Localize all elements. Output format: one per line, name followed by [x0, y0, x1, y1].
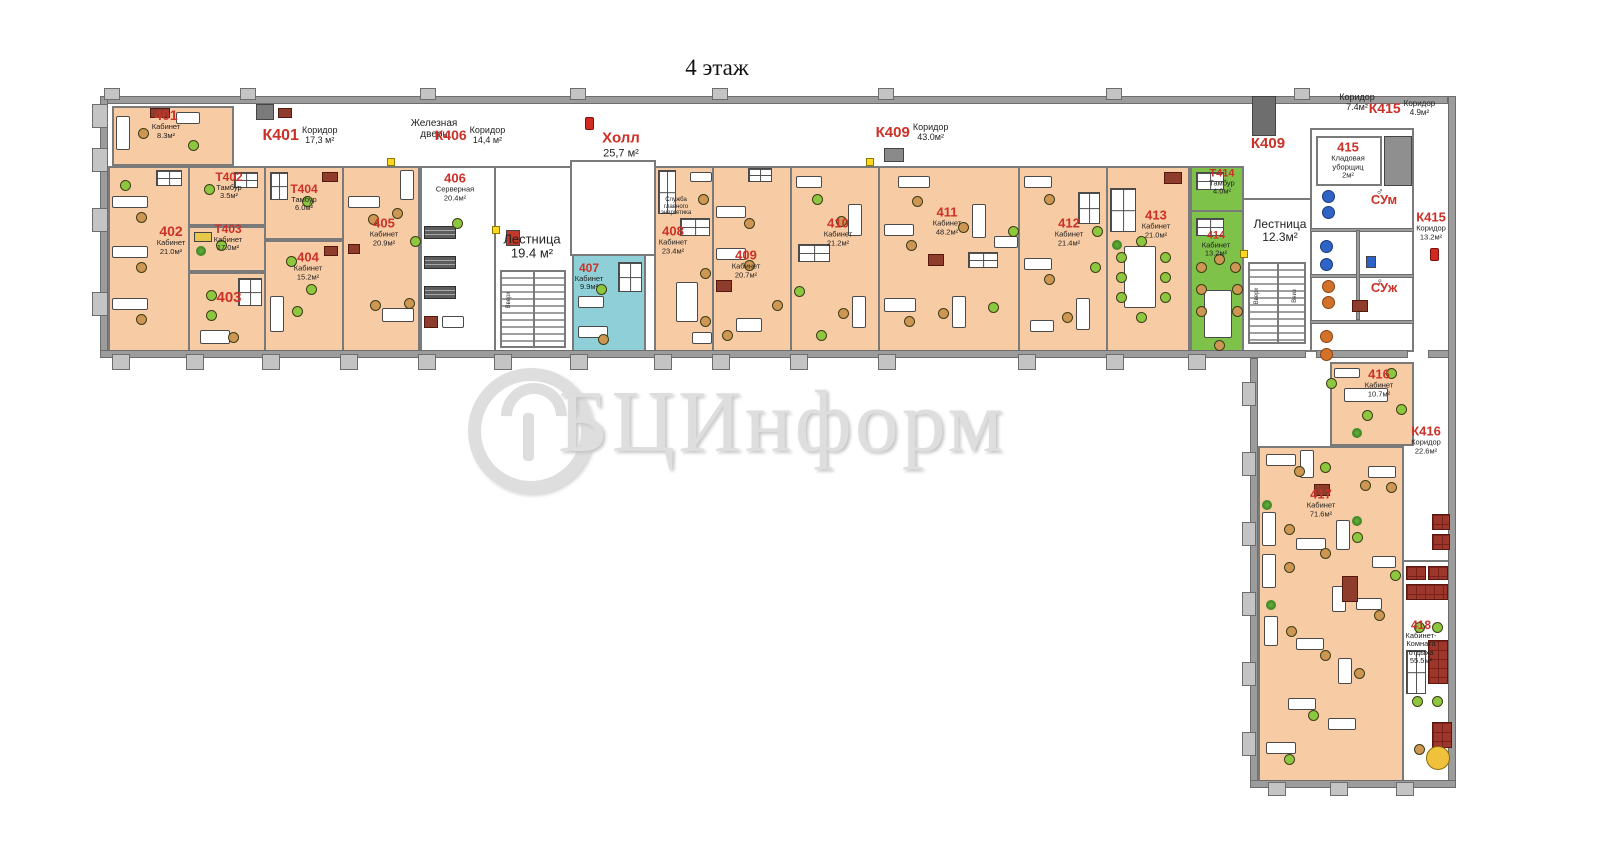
text-line: Служба	[661, 197, 691, 204]
chair-icon	[136, 212, 147, 223]
fixture	[1366, 256, 1376, 268]
room-number: 404	[294, 251, 323, 265]
room-number: 401	[152, 108, 181, 123]
desk	[442, 316, 464, 328]
pilaster	[494, 354, 512, 370]
chair-icon	[370, 300, 381, 311]
text-line: Лестница	[503, 233, 560, 247]
chair-icon	[206, 310, 217, 321]
chair-icon	[1432, 696, 1443, 707]
label-404: 404Кабинет15.2м²	[294, 251, 323, 282]
chair-icon	[136, 262, 147, 273]
desk	[1264, 616, 1278, 646]
desk	[1204, 290, 1232, 338]
safety-sign-icon	[866, 158, 874, 166]
room-area: 9.9м²	[575, 284, 604, 292]
safety-sign-icon	[387, 158, 395, 166]
chair-icon	[812, 194, 823, 205]
room-number: 402	[157, 224, 186, 239]
sofa	[1432, 534, 1450, 550]
chair-icon	[700, 316, 711, 327]
room-area: 23.4м²	[659, 247, 688, 255]
room-area: 21.4м²	[1055, 239, 1084, 247]
room-area: 13.2м²	[1416, 233, 1446, 241]
wall-segment	[1310, 320, 1414, 324]
cabinet	[1164, 172, 1182, 184]
desk	[382, 308, 414, 322]
pilaster	[1242, 522, 1256, 546]
room-number: 408	[659, 225, 688, 239]
pilaster	[1268, 782, 1286, 796]
room-area: 20.4м²	[436, 194, 474, 202]
chair-icon	[1090, 262, 1101, 273]
wall-segment	[100, 96, 1448, 104]
label-К415: К415Коридор13.2м²	[1416, 211, 1446, 242]
desk	[1024, 258, 1052, 270]
label-К409: К409Коридор43.0м²	[876, 123, 949, 143]
chair-icon	[410, 236, 421, 247]
watermark-logo-icon	[468, 368, 594, 494]
label-410: 410Кабинет21.2м²	[824, 217, 853, 248]
chair-icon	[1374, 610, 1385, 621]
cabinet	[424, 316, 438, 328]
chair-icon	[1294, 466, 1305, 477]
chair-icon	[452, 218, 463, 229]
desk	[994, 236, 1018, 248]
chair-icon	[1160, 292, 1171, 303]
shelf	[238, 278, 262, 306]
chair-icon	[1232, 284, 1243, 295]
room-hall	[570, 160, 656, 256]
chair-icon	[772, 300, 783, 311]
pilaster	[92, 208, 108, 232]
chair-icon	[306, 284, 317, 295]
chair-icon	[228, 332, 239, 343]
chair-icon	[722, 330, 733, 341]
label-СУж: СУж	[1371, 281, 1397, 295]
plant-icon	[1352, 516, 1362, 526]
server-rack	[424, 256, 456, 269]
label-Т403: Т403Кабинет17.0м²	[214, 223, 243, 253]
room-area: 21.2м²	[824, 239, 853, 247]
shelf	[618, 262, 642, 292]
label-Т414: Т414Тамбур4.0м²	[1209, 168, 1234, 197]
desk	[400, 170, 414, 200]
chair-icon	[1136, 312, 1147, 323]
desk	[796, 176, 822, 188]
pilaster	[1242, 452, 1256, 476]
label-К416: К416Коридор22.6м²	[1411, 425, 1441, 456]
plant-icon	[1112, 240, 1122, 250]
chair-icon	[1326, 378, 1337, 389]
room-area: 55.5м²	[1405, 657, 1436, 665]
chair-icon	[1160, 252, 1171, 263]
toilet-icon	[1320, 348, 1333, 361]
desk	[884, 224, 914, 236]
chair-icon	[1396, 404, 1407, 415]
pilaster	[1188, 354, 1206, 370]
room-area: 21.0м²	[157, 248, 186, 256]
pilaster	[570, 354, 588, 370]
desk	[112, 246, 148, 258]
pilaster	[186, 354, 204, 370]
room-number: 416	[1365, 368, 1394, 382]
corridor-info: Коридор43.0м²	[913, 123, 949, 143]
room-area: 8.3м²	[152, 132, 181, 140]
label-418: 418Кабинет-Комнатаотдыха55.5м²	[1405, 619, 1436, 665]
sofa	[1432, 514, 1450, 530]
label-412: 412Кабинет21.4м²	[1055, 217, 1084, 248]
toilet-icon	[1320, 258, 1333, 271]
room-number: К415	[1416, 211, 1446, 225]
label-416: 416Кабинет10.7м²	[1365, 368, 1394, 399]
chair-icon	[988, 302, 999, 313]
chair-icon	[1214, 340, 1225, 351]
pilaster	[92, 292, 108, 316]
label-Лестница: Лестница12.3м²	[1254, 218, 1307, 244]
chair-icon	[1386, 482, 1397, 493]
cabinet	[716, 280, 732, 292]
pilaster	[262, 354, 280, 370]
pilaster	[340, 354, 358, 370]
chair-icon	[1390, 570, 1401, 581]
desk	[270, 296, 284, 332]
corridor-area: 14,4 м²	[470, 136, 506, 146]
fixture	[1252, 96, 1276, 136]
shelf	[270, 172, 288, 200]
pilaster	[1242, 662, 1256, 686]
wall-segment	[1310, 274, 1414, 278]
desk	[578, 296, 604, 308]
chair-icon	[120, 180, 131, 191]
desk	[348, 196, 380, 208]
room-number: 410	[824, 217, 853, 231]
pilaster	[418, 354, 436, 370]
pilaster	[1018, 354, 1036, 370]
page-title: 4 этаж	[685, 55, 749, 81]
label-К406: К406Коридор14,4 м²	[435, 126, 505, 146]
room-number: 409	[732, 249, 761, 263]
desk	[1262, 512, 1276, 546]
room-area: 25,7 м²	[602, 147, 640, 159]
chair-icon	[1062, 312, 1073, 323]
label-407: 407Кабинет9.9м²	[575, 262, 604, 292]
chair-icon	[136, 314, 147, 325]
chair-icon	[1092, 226, 1103, 237]
pilaster	[92, 148, 108, 172]
chair-icon	[404, 298, 415, 309]
sofa	[1406, 584, 1448, 600]
chair-icon	[1116, 292, 1127, 303]
pilaster	[104, 88, 120, 100]
chair-icon	[1320, 650, 1331, 661]
label-Вверх: Вверх	[506, 292, 512, 309]
chair-icon	[1160, 272, 1171, 283]
corridor-id: К401	[262, 127, 298, 145]
room-number: СУм	[1371, 193, 1397, 207]
room-area: 10.7м²	[1365, 390, 1394, 398]
chair-icon	[906, 240, 917, 251]
text-line: 12.3м²	[1254, 231, 1307, 244]
pilaster	[1396, 782, 1414, 796]
desk	[736, 318, 762, 332]
shelf	[1110, 188, 1136, 232]
label-К409: К409	[1251, 136, 1285, 153]
desk	[1266, 742, 1296, 754]
desk	[200, 330, 230, 344]
desk	[898, 176, 930, 188]
cabinet	[322, 172, 338, 182]
pilaster	[1242, 382, 1256, 406]
pilaster	[112, 354, 130, 370]
chair-icon	[838, 308, 849, 319]
chair-icon	[700, 268, 711, 279]
room-area: 20.9м²	[370, 239, 399, 247]
sofa	[1432, 722, 1452, 748]
room-area: 48.2м²	[933, 228, 962, 236]
chair-icon	[1352, 532, 1363, 543]
room-area: 20.7м²	[732, 271, 761, 279]
room-area: 6.0м²	[290, 205, 317, 213]
chair-icon	[1286, 626, 1297, 637]
label-402: 402Кабинет21.0м²	[157, 224, 186, 256]
room-402	[108, 166, 190, 352]
toilet-icon	[1322, 296, 1335, 309]
cabinet	[278, 108, 292, 118]
label-405: 405Кабинет20.9м²	[370, 217, 399, 248]
cabinet	[348, 244, 360, 254]
toilet-icon	[1322, 280, 1335, 293]
safety-sign-icon	[492, 226, 500, 234]
room-411	[878, 166, 1020, 352]
desk	[1262, 554, 1276, 588]
desk	[1076, 298, 1090, 330]
chair-icon	[1354, 668, 1365, 679]
corridor-id: К409	[876, 125, 910, 142]
shelf	[748, 168, 772, 182]
desk	[1030, 320, 1054, 332]
pilaster	[240, 88, 256, 100]
pilaster	[1106, 88, 1122, 100]
chair-icon	[912, 196, 923, 207]
desk	[1356, 598, 1382, 610]
text-line: энергетика	[661, 210, 691, 217]
desk	[1328, 718, 1356, 730]
desk	[1296, 638, 1324, 650]
shelf	[968, 252, 998, 268]
round-table	[1426, 746, 1450, 770]
cabinet	[1352, 300, 1368, 312]
chair-icon	[138, 128, 149, 139]
pilaster	[1330, 782, 1348, 796]
plant-icon	[1266, 600, 1276, 610]
chair-icon	[794, 286, 805, 297]
chair-icon	[598, 334, 609, 345]
pilaster	[878, 354, 896, 370]
wall-segment	[100, 350, 1306, 358]
watermark: БЦИнформ	[558, 372, 1006, 473]
fixture	[256, 104, 274, 120]
label-Лестница: Лестница19.4 м²	[503, 233, 560, 262]
room-number: 412	[1055, 217, 1084, 231]
room-number: 405	[370, 217, 399, 231]
floor-plan: 4 этаж БЦИнформ ♂♀401Кабинет8.3м²К401Кор…	[0, 0, 1600, 844]
desk	[116, 116, 130, 150]
fixture	[1384, 136, 1412, 186]
fire-extinguisher-icon	[1430, 248, 1439, 261]
room-area: 13.2м²	[1202, 250, 1231, 258]
label-Холл: Холл25,7 м²	[602, 131, 640, 160]
desk	[1288, 698, 1316, 710]
cabinet	[1342, 576, 1358, 602]
cabinet	[324, 246, 338, 256]
chair-icon	[1116, 252, 1127, 263]
stairs-flight	[500, 270, 566, 348]
chair-icon	[1116, 272, 1127, 283]
desk	[676, 282, 698, 322]
wall-segment	[1448, 96, 1456, 788]
chair-icon	[1284, 562, 1295, 573]
label-417: 417Кабинет71.6м²	[1307, 488, 1336, 519]
chair-icon	[1360, 480, 1371, 491]
label-Т404: Т404Тамбур6.0м²	[290, 183, 317, 213]
text-line: главного	[661, 204, 691, 211]
chair-icon	[1232, 306, 1243, 317]
corridor-info: Коридор14,4 м²	[470, 126, 506, 146]
desk	[112, 298, 148, 310]
chair-icon	[1320, 462, 1331, 473]
label-415: 415Кладоваяуборщиц2м²	[1331, 140, 1365, 179]
desk	[1336, 520, 1350, 550]
desk	[716, 206, 746, 218]
chair-icon	[1284, 524, 1295, 535]
toilet-icon	[1320, 330, 1333, 343]
chair-icon	[188, 140, 199, 151]
desk	[112, 196, 148, 208]
desk	[972, 204, 986, 238]
chair-icon	[1196, 306, 1207, 317]
room-area: 71.6м²	[1307, 510, 1336, 518]
label-408: 408Кабинет23.4м²	[659, 225, 688, 256]
desk	[1266, 454, 1296, 466]
plant-icon	[1262, 500, 1272, 510]
toilet-icon	[1320, 240, 1333, 253]
room-area: 2м²	[1331, 171, 1365, 179]
label-Вверх: Вверх	[1254, 288, 1260, 305]
room-number: 406	[436, 172, 474, 186]
chair-icon	[1284, 754, 1295, 765]
pilaster	[1294, 88, 1310, 100]
toilet-icon	[1322, 190, 1335, 203]
room-number: 417	[1307, 488, 1336, 502]
room-area: 17.0м²	[214, 245, 243, 253]
chair-icon	[904, 316, 915, 327]
chair-icon	[1414, 744, 1425, 755]
chair-icon	[1362, 410, 1373, 421]
chair-icon	[1196, 284, 1207, 295]
fixture	[194, 232, 212, 242]
room-area: 3.5м²	[215, 193, 242, 201]
corridor-info: Коридор4.9м²	[1404, 100, 1436, 118]
pilaster	[712, 354, 730, 370]
pilaster	[570, 88, 586, 100]
corridor-info: Коридор17,3 м²	[302, 126, 338, 146]
safety-sign-icon	[1240, 250, 1248, 258]
pilaster	[878, 88, 894, 100]
chair-icon	[698, 194, 709, 205]
toilet-icon	[1322, 206, 1335, 219]
corridor-area: 43.0м²	[913, 133, 949, 143]
pilaster	[92, 104, 108, 128]
room-number: 415	[1331, 140, 1365, 154]
pilaster	[712, 88, 728, 100]
chair-icon	[204, 184, 215, 195]
desk	[1124, 246, 1156, 308]
label-401: 401Кабинет8.3м²	[152, 108, 181, 140]
chair-icon	[1230, 262, 1241, 273]
plant-icon	[196, 246, 206, 256]
pilaster	[420, 88, 436, 100]
chair-icon	[292, 306, 303, 317]
chair-icon	[1044, 194, 1055, 205]
corridor-id: К406	[435, 128, 467, 143]
pilaster	[790, 354, 808, 370]
pilaster	[1106, 354, 1124, 370]
chair-icon	[1412, 696, 1423, 707]
desk	[1372, 556, 1396, 568]
label-413: 413Кабинет21.0м²	[1142, 209, 1171, 240]
label-Т402: Т402Тамбур3.5м²	[215, 171, 242, 201]
room-area: 4.0м²	[1209, 188, 1234, 196]
chair-icon	[1320, 548, 1331, 559]
desk	[690, 172, 712, 182]
fire-extinguisher-icon	[585, 117, 594, 130]
label-411: 411Кабинет48.2м²	[933, 206, 962, 237]
chair-icon	[1196, 262, 1207, 273]
label-Служба: Службаглавногоэнергетика	[661, 197, 691, 217]
label-403: 403	[216, 290, 241, 307]
shelf	[156, 170, 182, 186]
pilaster	[654, 354, 672, 370]
cabinet	[928, 254, 944, 266]
fixture	[884, 148, 904, 162]
room-number: 411	[933, 206, 962, 220]
desk	[952, 296, 966, 328]
sofa	[1406, 566, 1426, 580]
chair-icon	[816, 330, 827, 341]
label-414: 414Кабинет13.2м²	[1202, 230, 1231, 259]
chair-icon	[1308, 710, 1319, 721]
wall-segment	[1250, 358, 1258, 782]
room-number: 413	[1142, 209, 1171, 223]
desk	[884, 298, 916, 312]
text-line: 19.4 м²	[503, 247, 560, 261]
chair-icon	[744, 218, 755, 229]
server-rack	[424, 286, 456, 299]
chair-icon	[938, 308, 949, 319]
room-area: 15.2м²	[294, 273, 323, 281]
label-К401: К401Коридор17,3 м²	[262, 126, 337, 146]
room-number: Холл	[602, 131, 640, 148]
wall-segment	[1310, 228, 1414, 232]
desk	[1024, 176, 1052, 188]
server-rack	[424, 226, 456, 239]
chair-icon	[1044, 274, 1055, 285]
label-Вниз: Вниз	[1292, 289, 1298, 302]
room-area: 21.0м²	[1142, 231, 1171, 239]
desk	[852, 296, 866, 328]
room-number: СУж	[1371, 281, 1397, 295]
